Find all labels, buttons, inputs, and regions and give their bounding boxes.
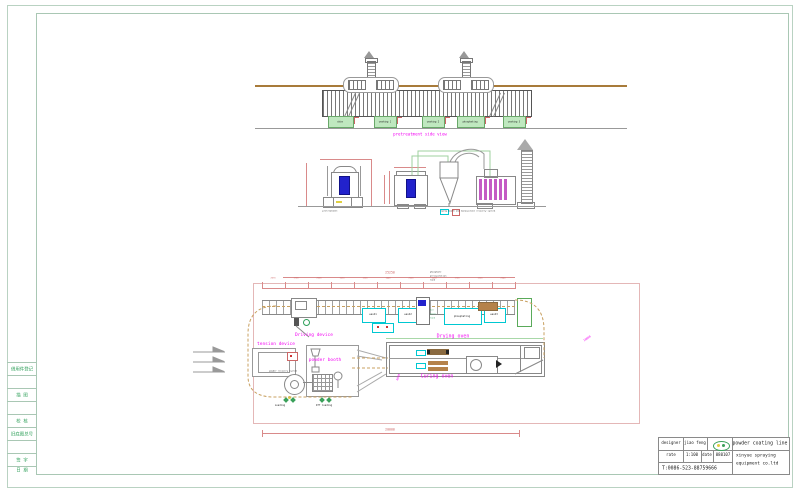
- dim-text: 1440: [385, 277, 390, 279]
- cyclone-cone: [440, 178, 458, 203]
- stack-cap: [460, 58, 473, 63]
- elevation-label: pretreatment: [322, 210, 337, 212]
- post-line: [327, 166, 328, 196]
- flow-arrows: [193, 347, 225, 372]
- designer-label: designer: [661, 441, 680, 445]
- margin-row: 旧底图总号: [7, 427, 37, 441]
- scale-value: 1:100: [686, 453, 698, 457]
- drawing-sheet: 借用件登记 描 图 校 核 旧底图总号 签 字 日 期: [0, 0, 800, 493]
- margin-row: [7, 440, 37, 454]
- dim-text: 2000: [316, 277, 321, 279]
- margin-row: 签 字: [7, 453, 37, 467]
- filter-top-box: [484, 169, 498, 178]
- ground-line: [298, 206, 546, 207]
- company-logo: [713, 441, 730, 451]
- exhaust-arrow-icon: [364, 51, 374, 58]
- tension-device-label: tension device: [257, 342, 295, 347]
- powder-booth-label: powder booth: [309, 358, 342, 363]
- margin-row: [7, 401, 37, 415]
- margin-row: 借用件登记: [7, 362, 37, 376]
- dim-line-segments: [262, 282, 516, 289]
- date-value: 080107: [716, 453, 730, 457]
- exhaust-arrow-icon: [459, 51, 469, 58]
- pump-mark: [445, 117, 450, 124]
- stack-cap: [365, 58, 378, 63]
- tank-label: skim: [337, 121, 342, 123]
- company-name-line1: xinyue spraying: [736, 453, 776, 457]
- pump-mark: [354, 117, 359, 124]
- ground-line: [255, 128, 627, 129]
- tb-line: [659, 462, 732, 463]
- oven-chamfer: [515, 360, 543, 374]
- post-line: [360, 166, 361, 196]
- filter-bar: [489, 179, 492, 200]
- dim-text: 1700: [293, 277, 298, 279]
- dim-text: 20000: [385, 428, 395, 431]
- phone-number: T:0086-523-88759666: [662, 466, 717, 471]
- plan-paths-svg: [180, 290, 590, 420]
- dim-text: 1650: [339, 277, 344, 279]
- filter-bar: [499, 179, 502, 200]
- dim-line: [306, 163, 307, 206]
- filter-bar: [479, 179, 482, 200]
- conveyor-loop-left: [248, 306, 352, 397]
- tank-label: washing 2: [427, 121, 439, 123]
- pump-mark: [526, 117, 531, 124]
- base-divider: [333, 197, 334, 206]
- drying-oven-label: Drying oven: [437, 334, 470, 339]
- tank-label: washing 1: [379, 121, 391, 123]
- fan-coil: [471, 80, 489, 90]
- margin-row-label: 旧底图总号: [11, 432, 33, 436]
- fan-coil: [348, 80, 366, 90]
- fan-coil: [376, 80, 394, 90]
- precip-note-line: phosphate: [430, 271, 441, 273]
- dim-text: 1500: [477, 277, 482, 279]
- curing-oven-label: Curing oven: [421, 374, 454, 379]
- dim-text: 1700: [454, 277, 459, 279]
- designer-value: jiao feng: [684, 441, 706, 445]
- precip-note-line: precipitation: [430, 275, 446, 277]
- margin-row: 校 核: [7, 414, 37, 428]
- scale-label: rate: [666, 453, 676, 457]
- title-block: designer jiao feng rate 1:100 date 08010…: [658, 437, 790, 475]
- exhaust-stack-tall: [521, 150, 533, 204]
- side-view-title: pretreatment side view: [393, 133, 447, 137]
- dim-tick: [262, 430, 263, 437]
- spray-gun-symbols: [311, 349, 342, 388]
- pump-mark: [485, 117, 490, 124]
- dim-text: 25250: [385, 271, 395, 274]
- margin-row-label: 签 字: [16, 458, 27, 462]
- date-label: date: [702, 453, 712, 457]
- company-name-line2: equipment co.ltd: [736, 461, 778, 465]
- conveyor-loop-right: [515, 300, 544, 358]
- yellow-mark: [336, 201, 342, 203]
- logo-dot: [722, 444, 725, 447]
- precip-note-line: tank: [430, 279, 435, 281]
- dim-line: [371, 159, 372, 206]
- tank-label: washing 3: [508, 121, 520, 123]
- margin-row-label: 描 图: [16, 393, 27, 397]
- pump-mark: [397, 117, 402, 124]
- dim-text: 2040: [500, 277, 505, 279]
- logo-dot: [717, 444, 720, 447]
- dim-text: 2070: [270, 277, 275, 279]
- dim-text: 1500: [362, 277, 367, 279]
- recovery-system-label: powder recovery system: [269, 370, 297, 372]
- dim-line-bottom: [262, 433, 520, 434]
- workpiece-blue: [339, 176, 350, 195]
- tb-line: [707, 438, 708, 450]
- filter-bar: [504, 179, 507, 200]
- margin-row-label: 借用件登记: [11, 367, 33, 371]
- exhaust-arrow-icon: [517, 139, 533, 150]
- tb-line: [713, 450, 714, 462]
- base-divider: [351, 197, 352, 206]
- dim-text: 2000: [408, 277, 413, 279]
- margin-row-label: 日 期: [16, 468, 27, 472]
- filter-bar: [494, 179, 497, 200]
- tank-label: phosphating: [463, 121, 478, 123]
- offloading-label: Off loading: [316, 404, 332, 406]
- driving-device-label: Driving device: [295, 333, 333, 338]
- fan-coil: [443, 80, 461, 90]
- margin-row: [7, 375, 37, 389]
- duct-curve: [455, 153, 479, 162]
- margin-strip: 借用件登记 描 图 校 核 旧底图总号 签 字 日 期: [7, 362, 37, 473]
- cyclone-cylinder: [440, 162, 458, 178]
- loading-label: Loading: [275, 404, 285, 406]
- elevation-label: spray booth and monocyclone recovery sys…: [441, 210, 495, 212]
- product-name: powder coating line: [733, 441, 788, 446]
- filter-bar: [484, 179, 487, 200]
- dim-tick: [519, 430, 520, 437]
- margin-row: 日 期: [7, 466, 37, 474]
- margin-row: 描 图: [7, 388, 37, 402]
- booth-funnel-lines: [357, 350, 386, 392]
- margin-row-label: 校 核: [16, 419, 27, 423]
- dim-line: [320, 159, 372, 160]
